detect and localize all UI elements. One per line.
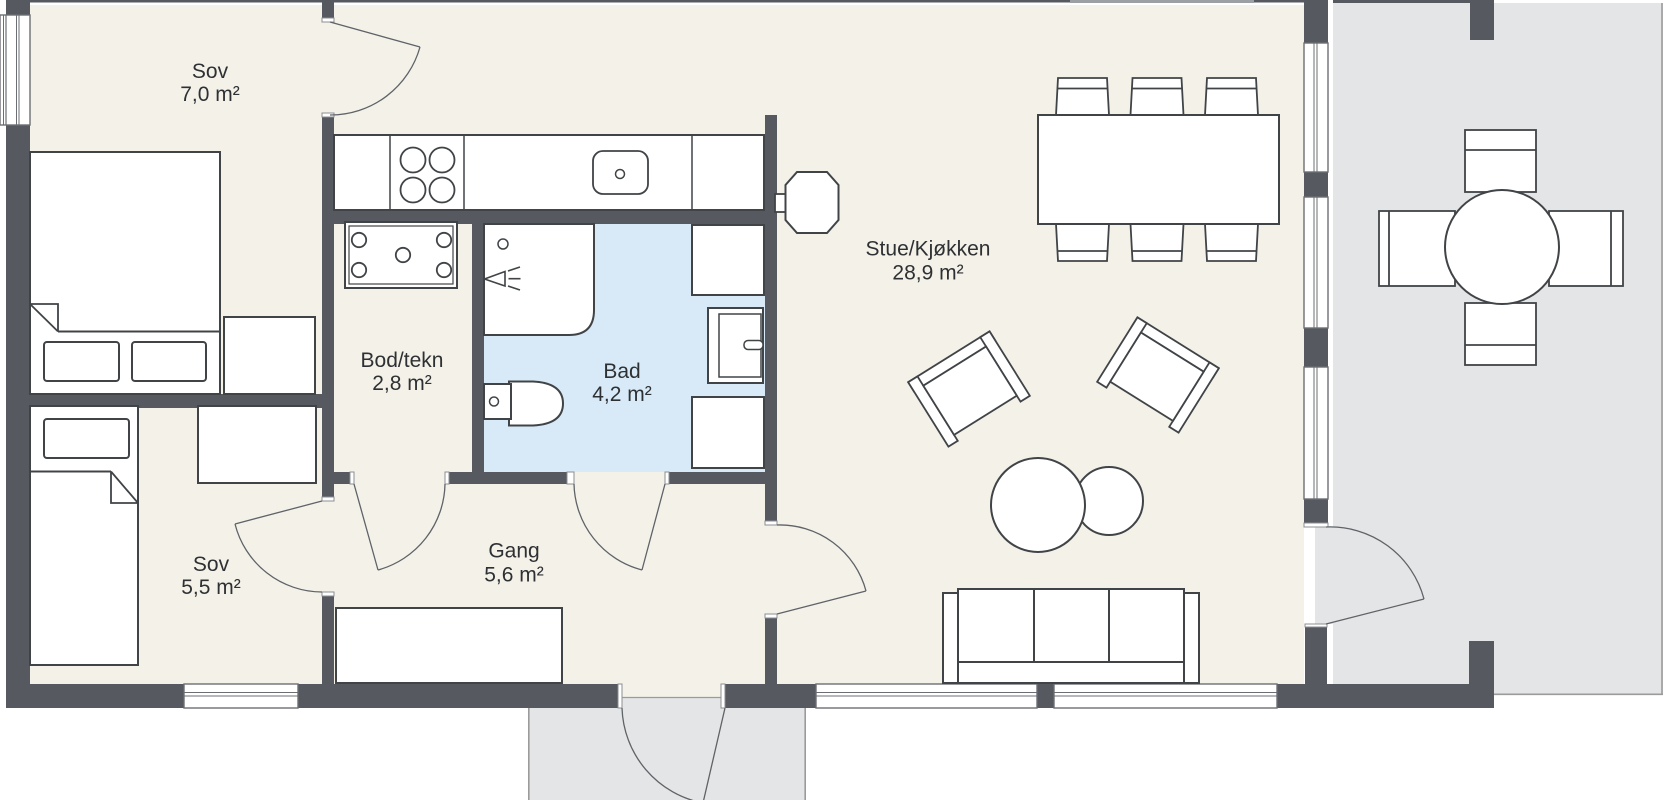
svg-text:28,9 m²: 28,9 m² — [892, 262, 963, 285]
svg-text:Bod/tekn: Bod/tekn — [361, 349, 444, 372]
svg-text:7,0 m²: 7,0 m² — [180, 83, 240, 106]
svg-text:Sov: Sov — [193, 553, 230, 576]
svg-text:4,2 m²: 4,2 m² — [592, 383, 652, 406]
svg-text:Sov: Sov — [192, 60, 229, 83]
svg-text:Bad: Bad — [603, 360, 640, 383]
svg-text:5,6 m²: 5,6 m² — [484, 564, 544, 587]
svg-text:2,8 m²: 2,8 m² — [372, 372, 432, 395]
svg-text:5,5 m²: 5,5 m² — [181, 576, 241, 599]
svg-text:Gang: Gang — [488, 540, 539, 563]
svg-text:Stue/Kjøkken: Stue/Kjøkken — [866, 238, 991, 261]
